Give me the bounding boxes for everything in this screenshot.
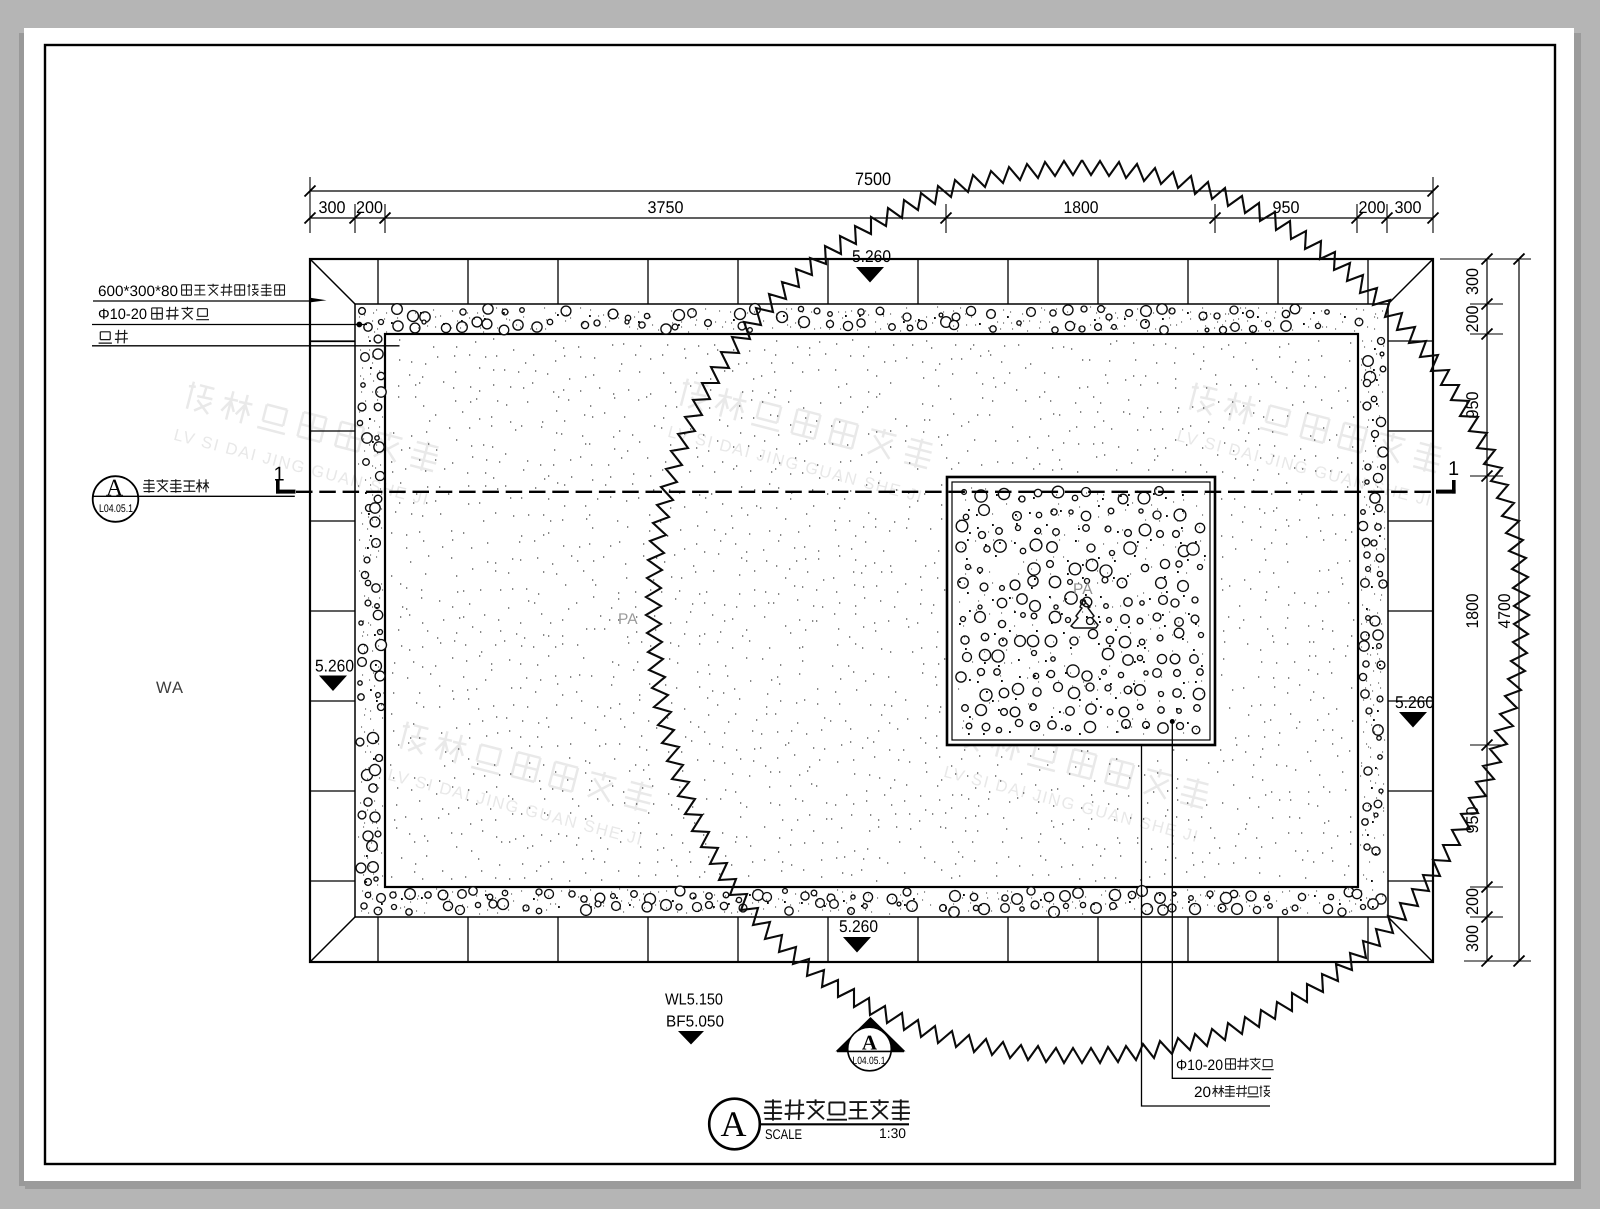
svg-text:3750: 3750 — [648, 198, 684, 217]
svg-text:300: 300 — [1463, 268, 1482, 295]
svg-text:950: 950 — [1273, 198, 1300, 217]
svg-text:200: 200 — [356, 198, 383, 217]
svg-text:5.260: 5.260 — [839, 917, 878, 936]
svg-text:WA: WA — [156, 679, 184, 697]
svg-text:200: 200 — [1463, 888, 1482, 915]
svg-text:5.260: 5.260 — [315, 657, 354, 676]
svg-text:WL5.150: WL5.150 — [665, 992, 723, 1009]
svg-text:A: A — [862, 1031, 878, 1055]
svg-text:A: A — [721, 1104, 747, 1144]
svg-text:Φ10-20: Φ10-20 — [98, 306, 147, 323]
svg-text:SCALE: SCALE — [765, 1126, 802, 1142]
svg-text:5.260: 5.260 — [852, 247, 891, 266]
svg-text:20: 20 — [1194, 1084, 1211, 1101]
svg-text:600*300*80: 600*300*80 — [98, 283, 178, 300]
svg-text:Φ10-20: Φ10-20 — [1176, 1057, 1223, 1074]
svg-text:1:30: 1:30 — [879, 1125, 906, 1141]
svg-text:PA: PA — [1073, 581, 1093, 598]
svg-text:BF5.050: BF5.050 — [666, 1014, 724, 1031]
svg-text:1: 1 — [1448, 458, 1459, 480]
svg-text:1: 1 — [274, 464, 285, 486]
svg-text:1800: 1800 — [1064, 198, 1099, 217]
svg-text:L04.05.1: L04.05.1 — [99, 503, 133, 515]
svg-text:200: 200 — [1359, 198, 1386, 217]
svg-text:5.260: 5.260 — [1395, 693, 1434, 712]
svg-text:4700: 4700 — [1495, 594, 1514, 629]
svg-text:300: 300 — [1395, 198, 1422, 217]
svg-text:200: 200 — [1463, 306, 1482, 333]
svg-text:300: 300 — [1463, 925, 1482, 952]
svg-text:A: A — [106, 476, 124, 502]
svg-text:L04.05.1: L04.05.1 — [853, 1055, 886, 1067]
svg-text:1800: 1800 — [1463, 594, 1482, 629]
svg-text:7500: 7500 — [855, 169, 891, 189]
svg-text:PA: PA — [618, 611, 638, 628]
svg-text:300: 300 — [319, 198, 346, 217]
